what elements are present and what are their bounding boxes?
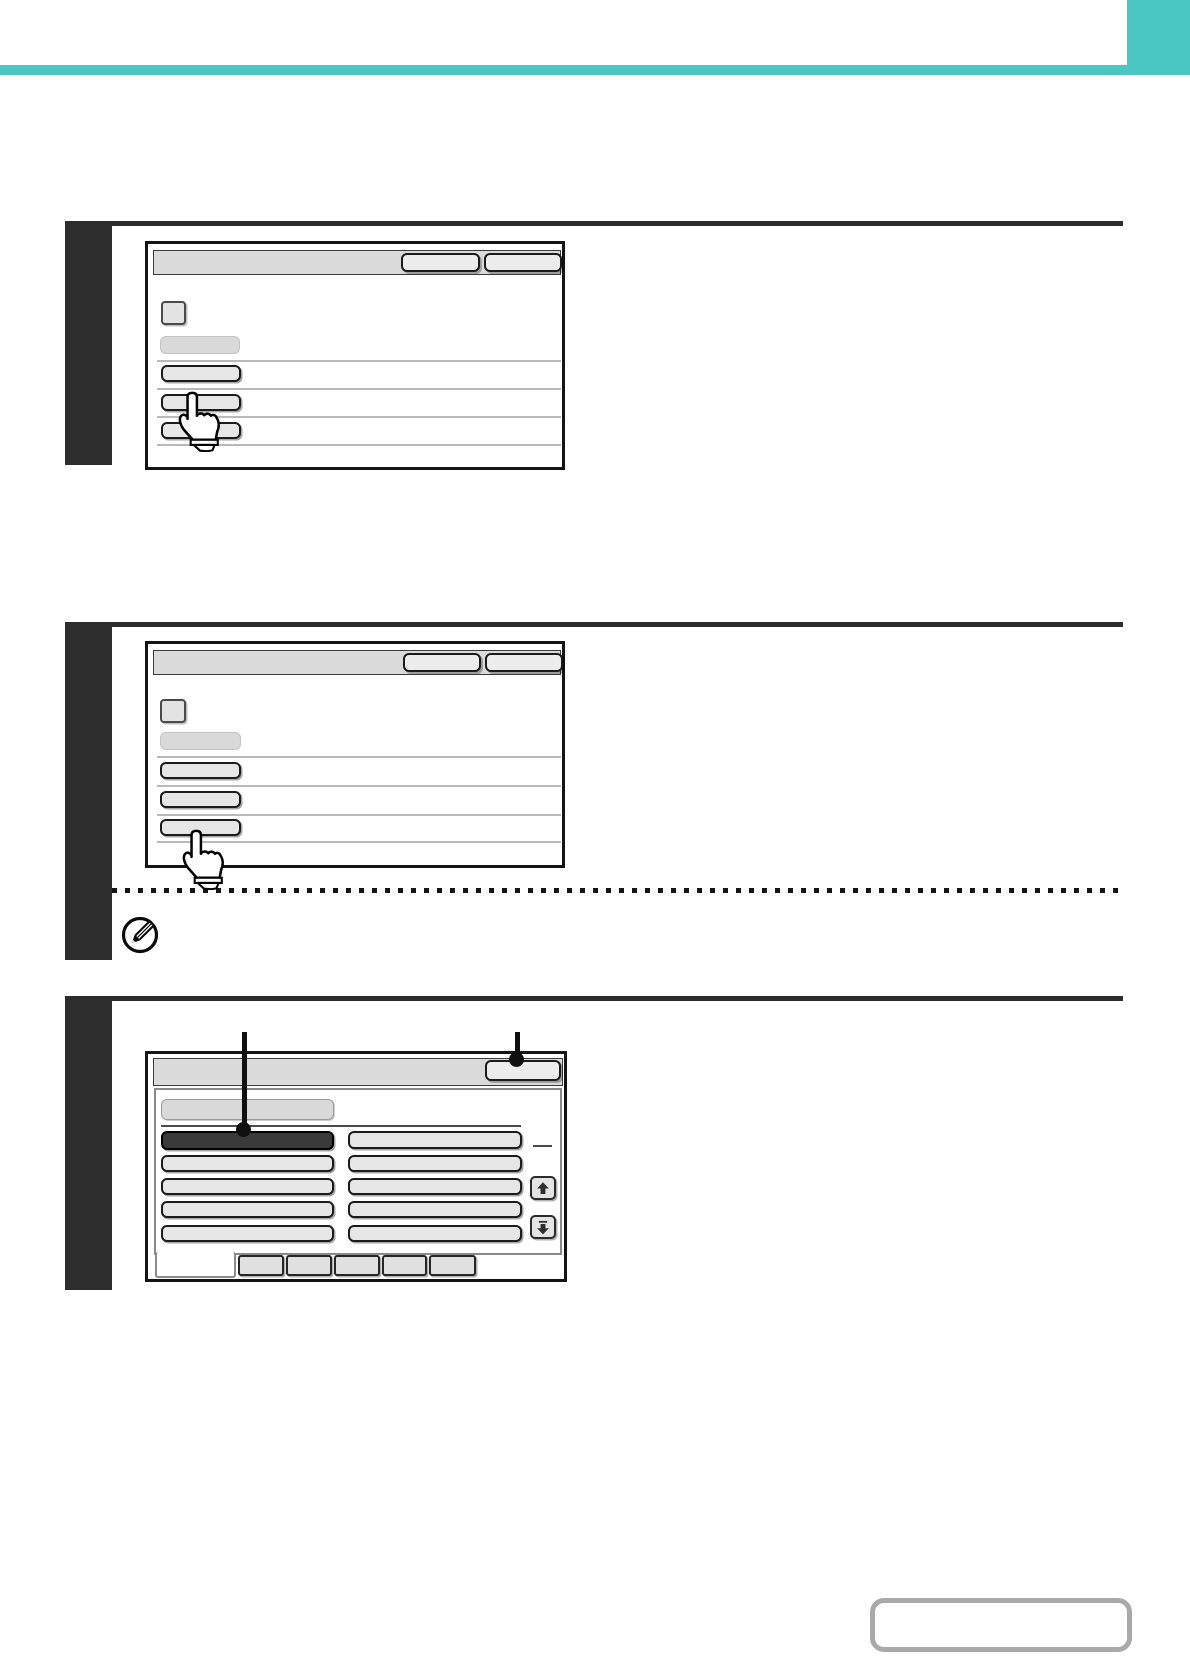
step-3-number-bar: [65, 996, 112, 1290]
step-2-number-bar: [65, 622, 112, 960]
screen-2: [145, 641, 565, 868]
hand-pointer-icon: [174, 390, 224, 452]
pencil-note-icon: [120, 915, 160, 955]
up-arrow-icon: [534, 1180, 552, 1197]
hand-pointer-icon: [178, 828, 228, 890]
step-2-rule: [112, 622, 1123, 627]
screen-2-menu-button-2[interactable]: [160, 791, 241, 808]
step-1-rule: [112, 221, 1123, 226]
screen-1: [145, 241, 565, 470]
screen-2-label-chip: [160, 732, 241, 750]
screen-1-titlebar-button-2[interactable]: [484, 253, 562, 272]
screen-3-grid-button-r4c2[interactable]: [348, 1201, 522, 1218]
screen-3-tab-2[interactable]: [238, 1255, 284, 1276]
scroll-up-button[interactable]: [530, 1176, 556, 1200]
step-1-number-bar: [65, 221, 112, 465]
callout-line-1: [242, 1032, 247, 1126]
callout-dot-1: [236, 1122, 251, 1137]
page-number-box: [870, 1598, 1132, 1652]
screen-3-tab-1-active[interactable]: [155, 1252, 236, 1278]
screen-3-grid-button-r3c2[interactable]: [348, 1178, 522, 1195]
screen-1-label-chip: [160, 336, 240, 354]
screen-3-grid-button-r2c2[interactable]: [348, 1155, 522, 1172]
screen-1-titlebar-button-1[interactable]: [401, 253, 480, 272]
scroll-down-button[interactable]: [530, 1215, 556, 1239]
header-accent-bar: [0, 65, 1190, 75]
screen-3-heading-rule: [161, 1125, 521, 1127]
screen-3-grid-button-r3c1[interactable]: [161, 1178, 334, 1195]
screen-1-menu-button-1[interactable]: [161, 365, 241, 382]
screen-3-grid-button-r5c1[interactable]: [161, 1225, 334, 1242]
screen-1-checkbox[interactable]: [161, 301, 186, 325]
screen-3-tab-6[interactable]: [429, 1255, 476, 1276]
down-arrow-icon: [534, 1219, 552, 1236]
manual-page: [0, 0, 1190, 1656]
screen-3-group-chip: [161, 1099, 334, 1120]
screen-2-titlebar-button-1[interactable]: [403, 653, 481, 672]
separator: [157, 785, 561, 787]
separator: [157, 756, 561, 758]
screen-3-grid-button-r1c2[interactable]: [348, 1131, 522, 1149]
screen-3-tab-3[interactable]: [286, 1255, 332, 1276]
step-3-rule: [112, 996, 1123, 1001]
screen-2-checkbox[interactable]: [160, 699, 186, 723]
callout-dot-2: [509, 1052, 524, 1067]
screen-3-grid-button-r5c2[interactable]: [348, 1225, 522, 1242]
page-indicator-divider: [533, 1145, 552, 1147]
screen-2-menu-button-1[interactable]: [160, 762, 241, 779]
screen-3: [145, 1051, 567, 1282]
separator: [157, 360, 561, 362]
screen-3-grid-button-r4c1[interactable]: [161, 1201, 334, 1218]
screen-3-tab-5[interactable]: [382, 1255, 427, 1276]
screen-3-tab-4[interactable]: [334, 1255, 380, 1276]
dashed-divider: [112, 888, 1120, 893]
screen-3-grid-button-r2c1[interactable]: [161, 1155, 334, 1172]
header-corner-block: [1127, 0, 1190, 75]
separator: [157, 814, 561, 816]
screen-2-titlebar-button-2[interactable]: [485, 653, 563, 672]
